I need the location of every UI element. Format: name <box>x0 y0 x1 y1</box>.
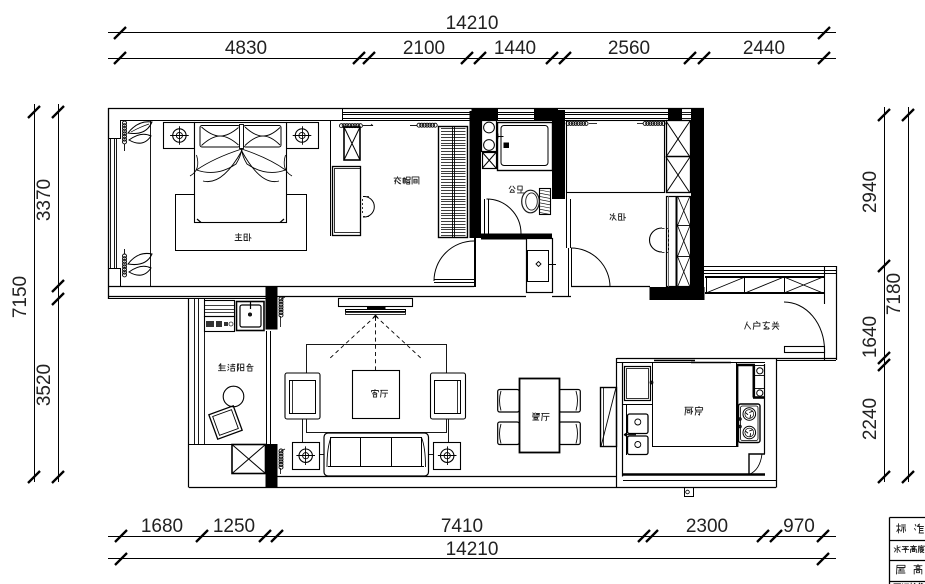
svg-text:2300: 2300 <box>686 516 728 537</box>
svg-text:14210: 14210 <box>446 539 499 560</box>
svg-text:2240: 2240 <box>860 398 881 440</box>
svg-text:1440: 1440 <box>494 38 536 59</box>
svg-text:2560: 2560 <box>608 38 650 59</box>
svg-text:4830: 4830 <box>225 38 267 59</box>
svg-text:1250: 1250 <box>213 516 255 537</box>
svg-text:970: 970 <box>783 516 815 537</box>
svg-text:2940: 2940 <box>860 171 881 213</box>
svg-text:1680: 1680 <box>141 516 183 537</box>
svg-text:1640: 1640 <box>860 316 881 358</box>
svg-text:2440: 2440 <box>743 38 785 59</box>
svg-text:2100: 2100 <box>403 38 445 59</box>
svg-text:3370: 3370 <box>34 179 55 221</box>
svg-text:14210: 14210 <box>446 13 499 34</box>
svg-text:3520: 3520 <box>34 364 55 406</box>
svg-text:7180: 7180 <box>884 273 905 315</box>
svg-text:7150: 7150 <box>10 276 31 318</box>
svg-text:7410: 7410 <box>441 516 483 537</box>
